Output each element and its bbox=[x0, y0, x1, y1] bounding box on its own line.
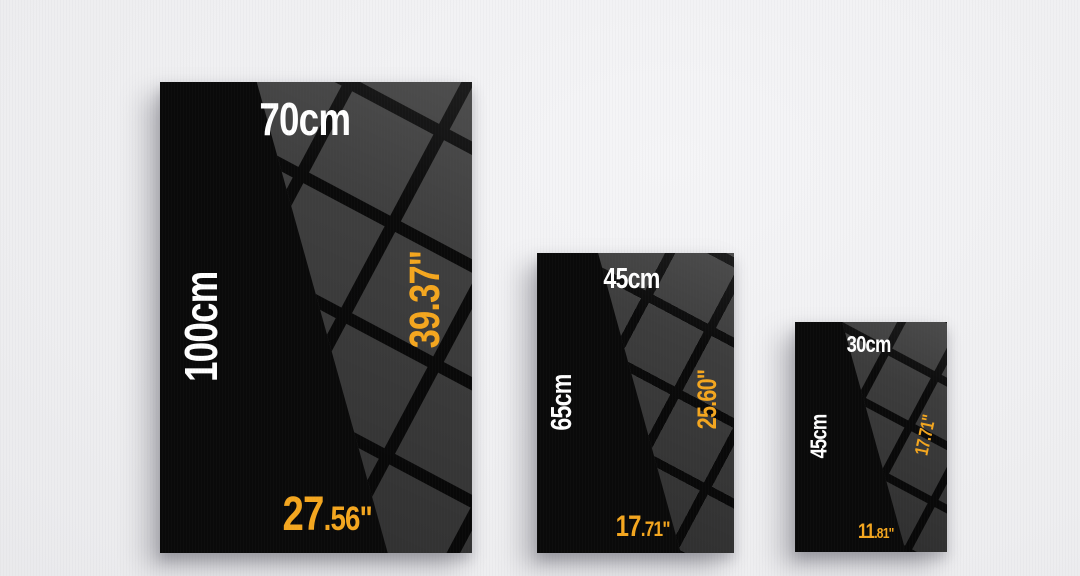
height-inches-label: 25.60" bbox=[694, 362, 721, 438]
width-inches-frac: .71" bbox=[641, 516, 670, 541]
height-cm-label: 45cm bbox=[808, 410, 831, 463]
width-inches-label: 27.56" bbox=[202, 491, 452, 539]
width-inches-frac: .56" bbox=[324, 500, 372, 538]
height-cm-label: 100cm bbox=[178, 278, 224, 382]
poster-70x100: 70cm 100cm 39.37" 27.56" bbox=[160, 82, 472, 553]
poster-30x45: 30cm 45cm 17.71" 11.81" bbox=[795, 322, 947, 552]
height-cm-label: 65cm bbox=[548, 369, 577, 437]
width-inches-int: 11 bbox=[858, 520, 874, 543]
width-inches-label: 11.81" bbox=[815, 521, 937, 542]
width-inches-label: 17.71" bbox=[564, 512, 722, 542]
width-cm-label: 45cm bbox=[553, 265, 711, 294]
width-cm-label: 30cm bbox=[808, 333, 930, 356]
width-inches-int: 17 bbox=[616, 510, 641, 543]
wall-background: 70cm 100cm 39.37" 27.56" 45cm 65cm 25.60… bbox=[0, 0, 1080, 576]
poster-45x65: 45cm 65cm 25.60" 17.71" bbox=[537, 253, 734, 553]
width-inches-frac: .81" bbox=[874, 525, 893, 542]
width-inches-int: 27 bbox=[282, 488, 323, 541]
width-cm-label: 70cm bbox=[180, 96, 430, 142]
height-inches-label: 39.37" bbox=[404, 246, 447, 354]
